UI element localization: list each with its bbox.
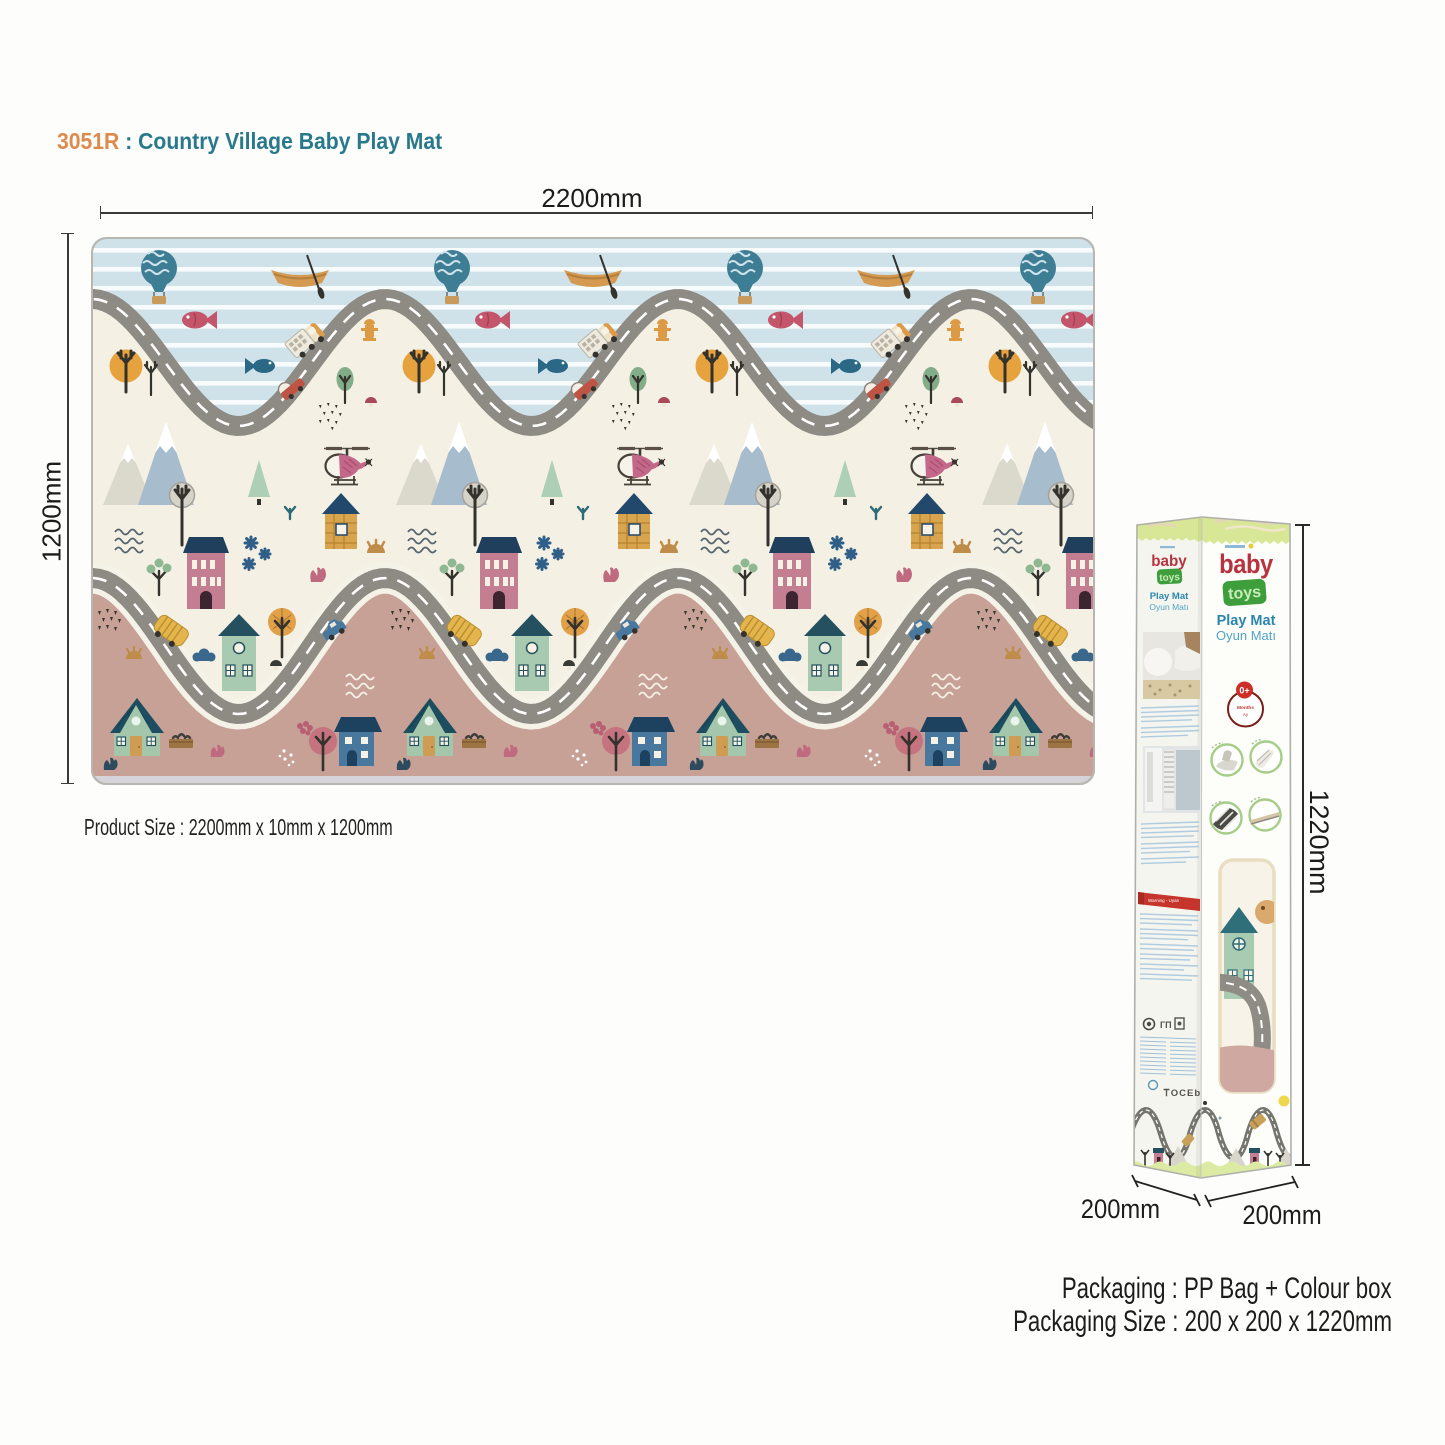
svg-text:Oyun Matı: Oyun Matı xyxy=(1216,628,1276,643)
svg-text:toys: toys xyxy=(1228,584,1262,603)
svg-text:baby: baby xyxy=(1151,553,1187,570)
svg-text:Play Mat: Play Mat xyxy=(1217,613,1276,629)
svg-text:toys: toys xyxy=(1159,572,1181,584)
svg-text:baby: baby xyxy=(1219,550,1273,580)
svg-text:Warning - Uyarı: Warning - Uyarı xyxy=(1148,898,1179,903)
svg-text:Months: Months xyxy=(1237,705,1254,711)
svg-text:Play Mat: Play Mat xyxy=(1150,591,1189,602)
svg-text:ГП: ГП xyxy=(1160,1020,1172,1030)
svg-text:ᎢOСЕb: ᎢOСЕb xyxy=(1163,1087,1201,1099)
svg-text:Oyun Matı: Oyun Matı xyxy=(1149,602,1188,612)
svg-text:Ay: Ay xyxy=(1243,712,1249,717)
svg-text:0+: 0+ xyxy=(1239,686,1249,696)
